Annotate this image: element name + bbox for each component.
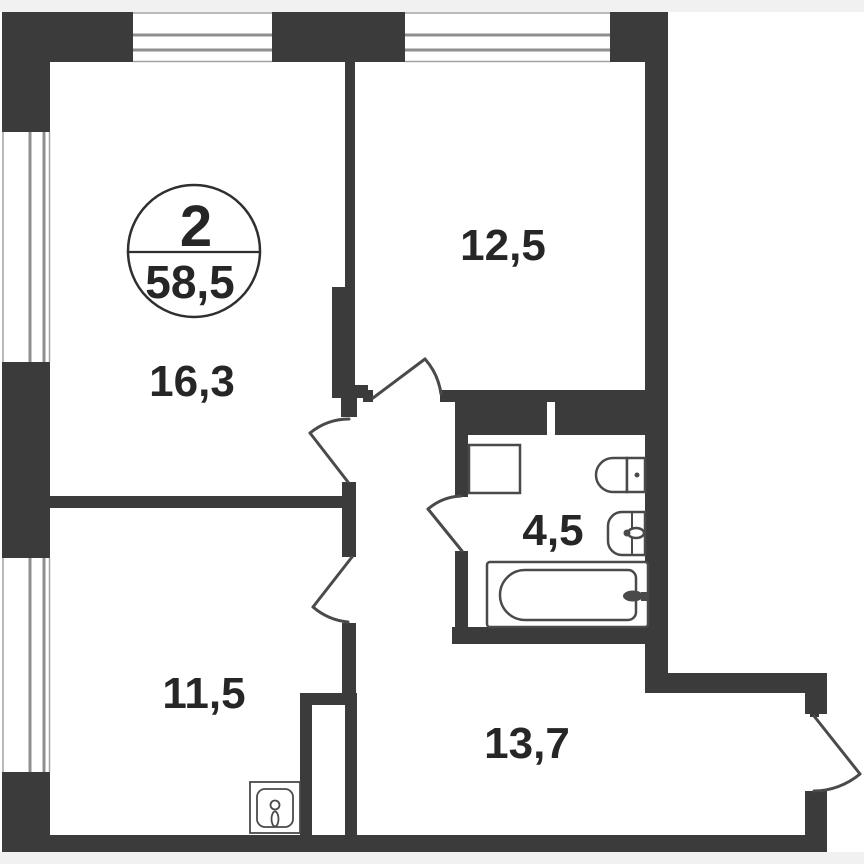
badge-room-count: 2 [180,194,212,259]
corridor-wall-post-top [341,395,357,417]
vent-shaft-cap [300,693,357,705]
wall-bathroom-left-upper [455,402,468,497]
wall-hall-top-right [645,673,827,693]
bedroom-door-jamb-left [363,390,373,402]
vent-shaft-left-leg [300,705,312,835]
wall-top-mid-pier [272,12,405,62]
plan-background [0,0,864,864]
wall-bathroom-top-right [555,402,645,435]
entrance-jamb-top [805,693,827,714]
wall-left-middle-pier [2,362,50,558]
floor-plan: 2 58,5 16,3 12,5 11,5 4,5 13,7 [0,0,864,864]
label-hallway-area: 13,7 [484,719,570,768]
wall-top-right-corner [610,12,668,62]
wall-living-bedroom-thin [345,62,355,287]
page-margin-bottom [0,852,864,864]
vent-shaft-right-leg [345,705,357,835]
label-bedroom-area: 12,5 [460,221,546,270]
label-bathroom-area: 4,5 [522,506,583,555]
wall-living-kitchen [50,496,345,508]
label-living-room-area: 16,3 [149,357,235,406]
badge-total-area: 58,5 [145,256,235,308]
wall-living-bedroom-pier [332,287,355,395]
wall-bedroom-bottom [440,390,668,402]
wall-bathroom-left-lower [455,551,468,627]
wall-left-upper [2,12,50,132]
page-margin-top [0,0,864,12]
kitchen-sink-icon [250,782,300,833]
corridor-wall-mid [342,482,356,557]
wall-bathroom-bottom [452,627,668,644]
floor-plan-page: 2 58,5 16,3 12,5 11,5 4,5 13,7 [0,0,864,864]
wall-bottom [2,835,827,852]
corridor-wall-low [342,623,356,705]
label-kitchen-area: 11,5 [162,669,245,718]
wall-bathroom-top-left [457,402,547,435]
unit-info-badge: 2 58,5 [128,185,260,317]
entrance-jamb-bottom [805,791,827,835]
toilet-icon [596,458,645,492]
washing-machine-icon [469,445,520,493]
bathtub-icon [487,562,648,627]
washbasin-icon [608,512,645,555]
